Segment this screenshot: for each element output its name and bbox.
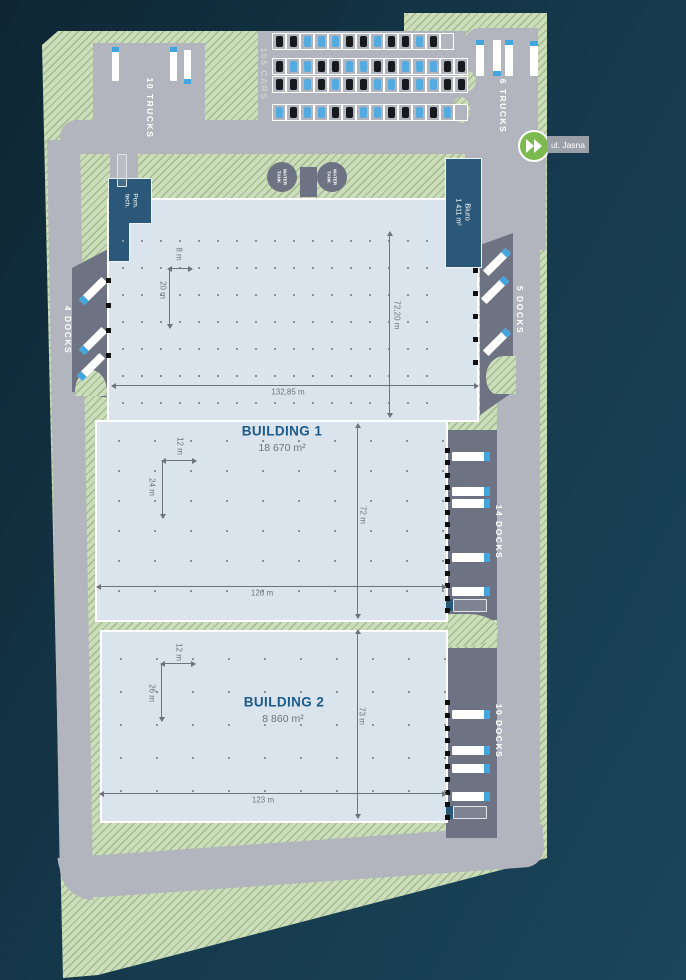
column-dot — [236, 402, 238, 404]
column-dot — [192, 691, 194, 693]
column-dot — [226, 530, 228, 532]
column-dot — [407, 402, 409, 404]
column-dot — [141, 267, 143, 269]
column-dot — [426, 294, 428, 296]
car-blue — [346, 61, 353, 72]
column-dot — [120, 691, 122, 693]
column-dot — [228, 757, 230, 759]
column-dot — [426, 375, 428, 377]
column-dot — [141, 402, 143, 404]
column-dot — [120, 658, 122, 660]
car-black — [346, 36, 353, 47]
column-dot — [154, 590, 156, 592]
parking-slot — [286, 33, 300, 50]
dock-door — [445, 485, 450, 490]
column-dot — [236, 240, 238, 242]
column-dot — [226, 440, 228, 442]
column-dot — [118, 530, 120, 532]
column-dot — [156, 724, 158, 726]
column-dot — [192, 790, 194, 792]
column-dot — [426, 240, 428, 242]
column-dot — [293, 375, 295, 377]
column-dot — [236, 321, 238, 323]
car-black — [430, 107, 437, 118]
column-dot — [406, 470, 408, 472]
column-dot — [407, 267, 409, 269]
truck — [170, 47, 177, 81]
column-dot — [298, 500, 300, 502]
parking-slot — [300, 33, 314, 50]
column-dot — [444, 691, 446, 693]
car-blue — [374, 79, 381, 90]
parking-slot — [314, 104, 328, 121]
car-black — [360, 79, 367, 90]
column-dot — [442, 500, 444, 502]
car-blue — [416, 36, 423, 47]
dimension-arrow — [387, 231, 393, 236]
column-dot — [426, 348, 428, 350]
parking-slot — [412, 76, 426, 93]
car-black — [318, 79, 325, 90]
column-dot — [179, 348, 181, 350]
column-dot — [190, 500, 192, 502]
dock-door — [445, 815, 450, 820]
column-dot — [372, 790, 374, 792]
car-blue — [304, 61, 311, 72]
truck-cab — [170, 47, 177, 52]
column-dot — [179, 321, 181, 323]
truck-cab — [184, 79, 191, 84]
dock-door — [473, 314, 478, 319]
car-black — [444, 61, 451, 72]
car-blue — [360, 107, 367, 118]
column-dot — [262, 500, 264, 502]
column-dot — [312, 267, 314, 269]
dimension-line — [97, 586, 446, 587]
column-dot — [217, 267, 219, 269]
column-dot — [160, 321, 162, 323]
dimension-label: 8 m — [175, 247, 184, 260]
dock-door — [106, 278, 111, 283]
parking-slot — [370, 76, 384, 93]
parking-slot — [384, 33, 398, 50]
truck — [452, 487, 490, 496]
dimension-arrow — [160, 514, 166, 519]
column-dot — [141, 294, 143, 296]
dock-door — [445, 497, 450, 502]
truck-cab — [484, 746, 490, 755]
parking-row — [272, 58, 468, 75]
column-dot — [406, 530, 408, 532]
building2-area: 8 860 m² — [262, 713, 303, 725]
column-dot — [298, 470, 300, 472]
column-dot — [156, 757, 158, 759]
dimension-label: 20 m — [159, 281, 168, 299]
parking-row — [272, 76, 468, 93]
truck — [112, 47, 119, 81]
parking-slot — [426, 104, 440, 121]
column-dot — [264, 724, 266, 726]
dimension-line — [112, 385, 478, 386]
column-dot — [160, 375, 162, 377]
tech-room-block-ext — [108, 223, 130, 262]
car-black — [402, 79, 409, 90]
dock-door — [445, 726, 450, 731]
column-dot — [300, 724, 302, 726]
dimension-line — [100, 793, 446, 794]
column-dot — [334, 560, 336, 562]
label-6-trucks: 6 TRUCKS — [498, 79, 508, 134]
car-blue — [374, 36, 381, 47]
column-dot — [298, 530, 300, 532]
column-dot — [179, 240, 181, 242]
column-dot — [336, 691, 338, 693]
car-blue — [374, 107, 381, 118]
column-dot — [293, 294, 295, 296]
column-dot — [331, 348, 333, 350]
column-dot — [228, 724, 230, 726]
car-black — [402, 36, 409, 47]
truck-cab — [484, 487, 490, 496]
dimension-arrow — [355, 423, 361, 428]
parking-slot — [342, 33, 356, 50]
column-dot — [141, 240, 143, 242]
column-dot — [426, 402, 428, 404]
car-black — [374, 61, 381, 72]
column-dot — [293, 240, 295, 242]
parking-row — [272, 33, 454, 50]
truck — [530, 41, 538, 76]
building2-title: BUILDING 2 — [244, 695, 325, 710]
column-dot — [190, 440, 192, 442]
parking-slot — [328, 58, 342, 75]
column-dot — [274, 294, 276, 296]
dock-door — [473, 360, 478, 365]
column-dot — [407, 375, 409, 377]
parking-slot — [314, 76, 328, 93]
column-dot — [369, 348, 371, 350]
column-dot — [122, 375, 124, 377]
column-dot — [442, 560, 444, 562]
parking-slot — [440, 104, 454, 121]
truck-cab — [484, 452, 490, 461]
label-5-docks: 5 DOCKS — [515, 286, 525, 334]
column-dot — [264, 790, 266, 792]
column-dot — [228, 790, 230, 792]
dock-door — [445, 460, 450, 465]
column-dot — [274, 348, 276, 350]
column-dot — [350, 294, 352, 296]
truck — [452, 792, 490, 801]
column-dot — [118, 560, 120, 562]
column-dot — [442, 530, 444, 532]
parking-slot — [440, 33, 454, 50]
column-dot — [154, 530, 156, 532]
dimension-label: 24 m — [148, 478, 157, 496]
column-dot — [426, 267, 428, 269]
column-dot — [372, 724, 374, 726]
parking-slot — [398, 104, 412, 121]
dimension-label: 126 m — [251, 589, 273, 598]
column-dot — [406, 590, 408, 592]
car-blue — [430, 79, 437, 90]
column-dot — [154, 440, 156, 442]
parking-slot — [370, 104, 384, 121]
column-dot — [369, 294, 371, 296]
column-dot — [255, 240, 257, 242]
column-dot — [350, 375, 352, 377]
column-dot — [293, 348, 295, 350]
column-dot — [255, 375, 257, 377]
column-dot — [264, 757, 266, 759]
column-dot — [228, 658, 230, 660]
dimension-label: 12 m — [175, 643, 184, 661]
car-blue — [416, 61, 423, 72]
column-dot — [156, 658, 158, 660]
parking-slot — [398, 33, 412, 50]
truck — [184, 50, 191, 84]
column-dot — [236, 348, 238, 350]
truck-outline — [117, 154, 127, 187]
truck — [452, 746, 490, 755]
column-dot — [444, 658, 446, 660]
label-14-docks: 14 DOCKS — [494, 505, 504, 560]
column-dot — [192, 724, 194, 726]
column-dot — [426, 321, 428, 323]
parking-slot — [454, 76, 468, 93]
column-dot — [407, 294, 409, 296]
column-dot — [369, 240, 371, 242]
column-dot — [350, 402, 352, 404]
parking-slot — [286, 76, 300, 93]
dock-door — [445, 522, 450, 527]
parking-slot — [356, 104, 370, 121]
dimension-label: 73 m — [358, 707, 367, 725]
column-dot — [312, 348, 314, 350]
column-dot — [217, 348, 219, 350]
column-dot — [274, 402, 276, 404]
column-dot — [198, 321, 200, 323]
street-label: ul. Jasna — [547, 136, 589, 153]
car-blue — [318, 107, 325, 118]
column-dot — [369, 321, 371, 323]
parking-row — [272, 104, 468, 121]
column-dot — [122, 240, 124, 242]
column-dot — [312, 402, 314, 404]
dimension-arrow — [96, 584, 101, 590]
column-dot — [179, 402, 181, 404]
dimension-arrow — [192, 458, 197, 464]
column-dot — [262, 560, 264, 562]
truck — [452, 587, 490, 596]
column-dot — [118, 590, 120, 592]
car-black — [346, 107, 353, 118]
column-dot — [190, 560, 192, 562]
column-dot — [298, 440, 300, 442]
car-black — [290, 107, 297, 118]
column-dot — [226, 560, 228, 562]
column-dot — [217, 402, 219, 404]
car-blue — [332, 36, 339, 47]
building2-hall — [100, 630, 448, 823]
parking-slot — [286, 58, 300, 75]
parking-slot — [342, 58, 356, 75]
car-black — [458, 79, 465, 90]
column-dot — [154, 470, 156, 472]
column-dot — [369, 375, 371, 377]
column-dot — [331, 294, 333, 296]
column-dot — [406, 560, 408, 562]
column-dot — [336, 757, 338, 759]
truck-cab — [476, 40, 484, 45]
column-dot — [226, 470, 228, 472]
column-dot — [369, 267, 371, 269]
car-black — [388, 36, 395, 47]
column-dot — [370, 560, 372, 562]
parking-slot — [454, 104, 468, 121]
dock-door — [445, 534, 450, 539]
column-dot — [274, 321, 276, 323]
truck — [476, 40, 484, 76]
column-dot — [331, 267, 333, 269]
dock-door — [445, 802, 450, 807]
parking-slot — [426, 76, 440, 93]
dock-door — [445, 700, 450, 705]
column-dot — [217, 240, 219, 242]
column-dot — [198, 267, 200, 269]
parking-slot — [440, 76, 454, 93]
dock-door — [445, 559, 450, 564]
parking-slot — [426, 58, 440, 75]
dock-door — [445, 448, 450, 453]
column-dot — [217, 321, 219, 323]
car-blue — [332, 79, 339, 90]
column-dot — [336, 790, 338, 792]
label-10-trucks: 10 TRUCKS — [145, 78, 155, 139]
column-dot — [255, 348, 257, 350]
dock-door — [445, 738, 450, 743]
tech-room-label: Pom. tech. — [122, 193, 139, 208]
car-blue — [304, 36, 311, 47]
dimension-arrow — [387, 413, 393, 418]
office-name: Biuro — [463, 198, 473, 225]
car-black — [332, 107, 339, 118]
dimension-arrow — [355, 814, 361, 819]
column-dot — [262, 440, 264, 442]
parking-slot — [328, 104, 342, 121]
truck-cab — [484, 792, 490, 801]
dimension-arrow — [442, 584, 447, 590]
dock-door — [445, 596, 450, 601]
dock-door — [106, 303, 111, 308]
column-dot — [264, 658, 266, 660]
label-105-cars: 105 CARS — [259, 48, 269, 101]
car-black — [276, 79, 283, 90]
truck-cab — [484, 587, 490, 596]
dock-door — [445, 764, 450, 769]
car-blue — [430, 61, 437, 72]
column-dot — [331, 240, 333, 242]
column-dot — [298, 590, 300, 592]
column-dot — [406, 440, 408, 442]
car-blue — [318, 36, 325, 47]
column-dot — [236, 267, 238, 269]
column-dot — [312, 321, 314, 323]
parking-slot — [300, 76, 314, 93]
column-dot — [198, 402, 200, 404]
car-black — [402, 107, 409, 118]
column-dot — [156, 790, 158, 792]
column-dot — [331, 321, 333, 323]
column-dot — [442, 440, 444, 442]
dock-door — [445, 777, 450, 782]
dimension-arrow — [167, 324, 173, 329]
column-dot — [255, 402, 257, 404]
parking-slot — [412, 33, 426, 50]
car-black — [388, 107, 395, 118]
truck — [452, 710, 490, 719]
building1-title: BUILDING 1 — [242, 424, 323, 439]
car-blue — [304, 107, 311, 118]
column-dot — [300, 757, 302, 759]
dimension-line — [169, 268, 170, 328]
column-dot — [122, 294, 124, 296]
car-black — [332, 61, 339, 72]
parking-slot — [412, 58, 426, 75]
parking-slot — [426, 33, 440, 50]
column-dot — [192, 757, 194, 759]
parking-slot — [370, 33, 384, 50]
column-dot — [264, 691, 266, 693]
dock-door — [473, 291, 478, 296]
label-10-docks: 10 DOCKS — [494, 704, 504, 759]
parking-slot — [272, 58, 286, 75]
column-dot — [334, 530, 336, 532]
dimension-arrow — [191, 661, 196, 667]
parking-slot — [342, 76, 356, 93]
dock-door — [106, 328, 111, 333]
dimension-arrow — [159, 717, 165, 722]
column-dot — [444, 724, 446, 726]
dimension-arrow — [111, 383, 116, 389]
column-dot — [407, 321, 409, 323]
column-dot — [334, 440, 336, 442]
column-dot — [141, 375, 143, 377]
column-dot — [444, 757, 446, 759]
dimension-arrow — [188, 266, 193, 272]
column-dot — [160, 402, 162, 404]
dimension-label: 72,20 m — [393, 301, 402, 330]
parking-slot — [328, 76, 342, 93]
column-dot — [442, 590, 444, 592]
truck — [452, 764, 490, 773]
parking-slot — [384, 76, 398, 93]
column-dot — [120, 757, 122, 759]
car-blue — [304, 79, 311, 90]
dock-door — [445, 751, 450, 756]
column-dot — [312, 294, 314, 296]
parking-slot — [356, 76, 370, 93]
column-dot — [300, 790, 302, 792]
parking-slot — [384, 58, 398, 75]
column-dot — [274, 375, 276, 377]
column-dot — [300, 658, 302, 660]
column-dot — [312, 375, 314, 377]
column-dot — [370, 500, 372, 502]
column-dot — [274, 267, 276, 269]
parking-slot — [384, 104, 398, 121]
column-dot — [262, 530, 264, 532]
